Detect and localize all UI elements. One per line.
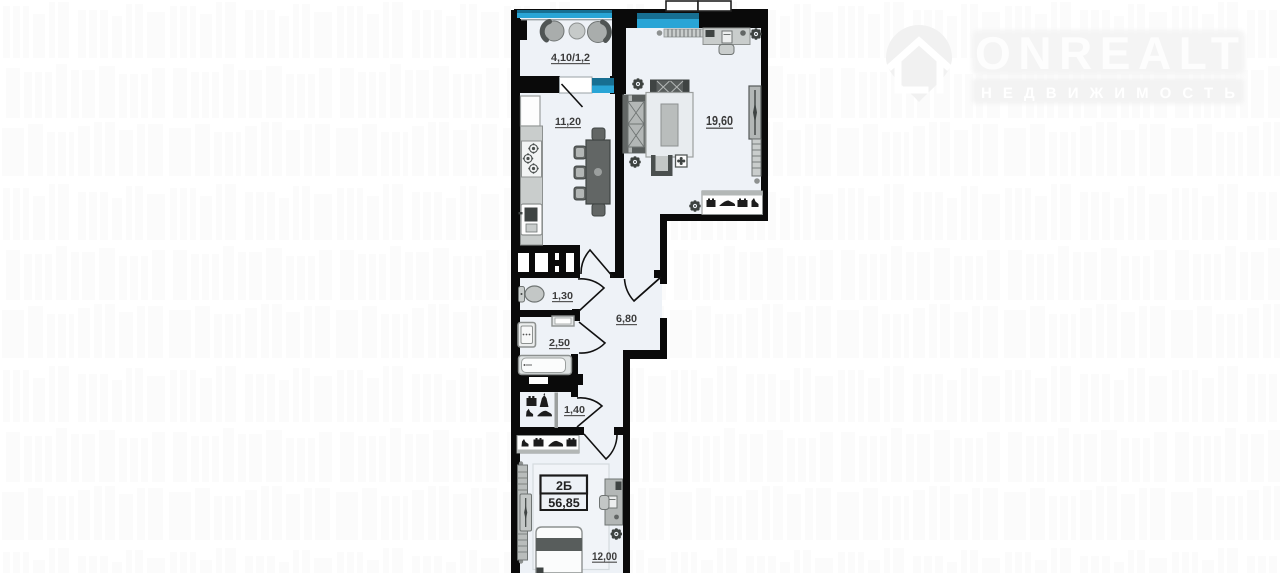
svg-text:2,50: 2,50 [549,338,570,349]
svg-text:12,00: 12,00 [592,551,617,563]
svg-text:19,60: 19,60 [706,113,733,128]
svg-text:1,30: 1,30 [552,291,573,302]
svg-text:6,80: 6,80 [616,313,637,325]
svg-text:4,10/1,2: 4,10/1,2 [551,52,590,64]
svg-text:1,40: 1,40 [564,405,585,416]
svg-text:56,85: 56,85 [548,496,580,510]
svg-text:11,20: 11,20 [555,116,581,128]
svg-text:2Б: 2Б [556,479,572,493]
